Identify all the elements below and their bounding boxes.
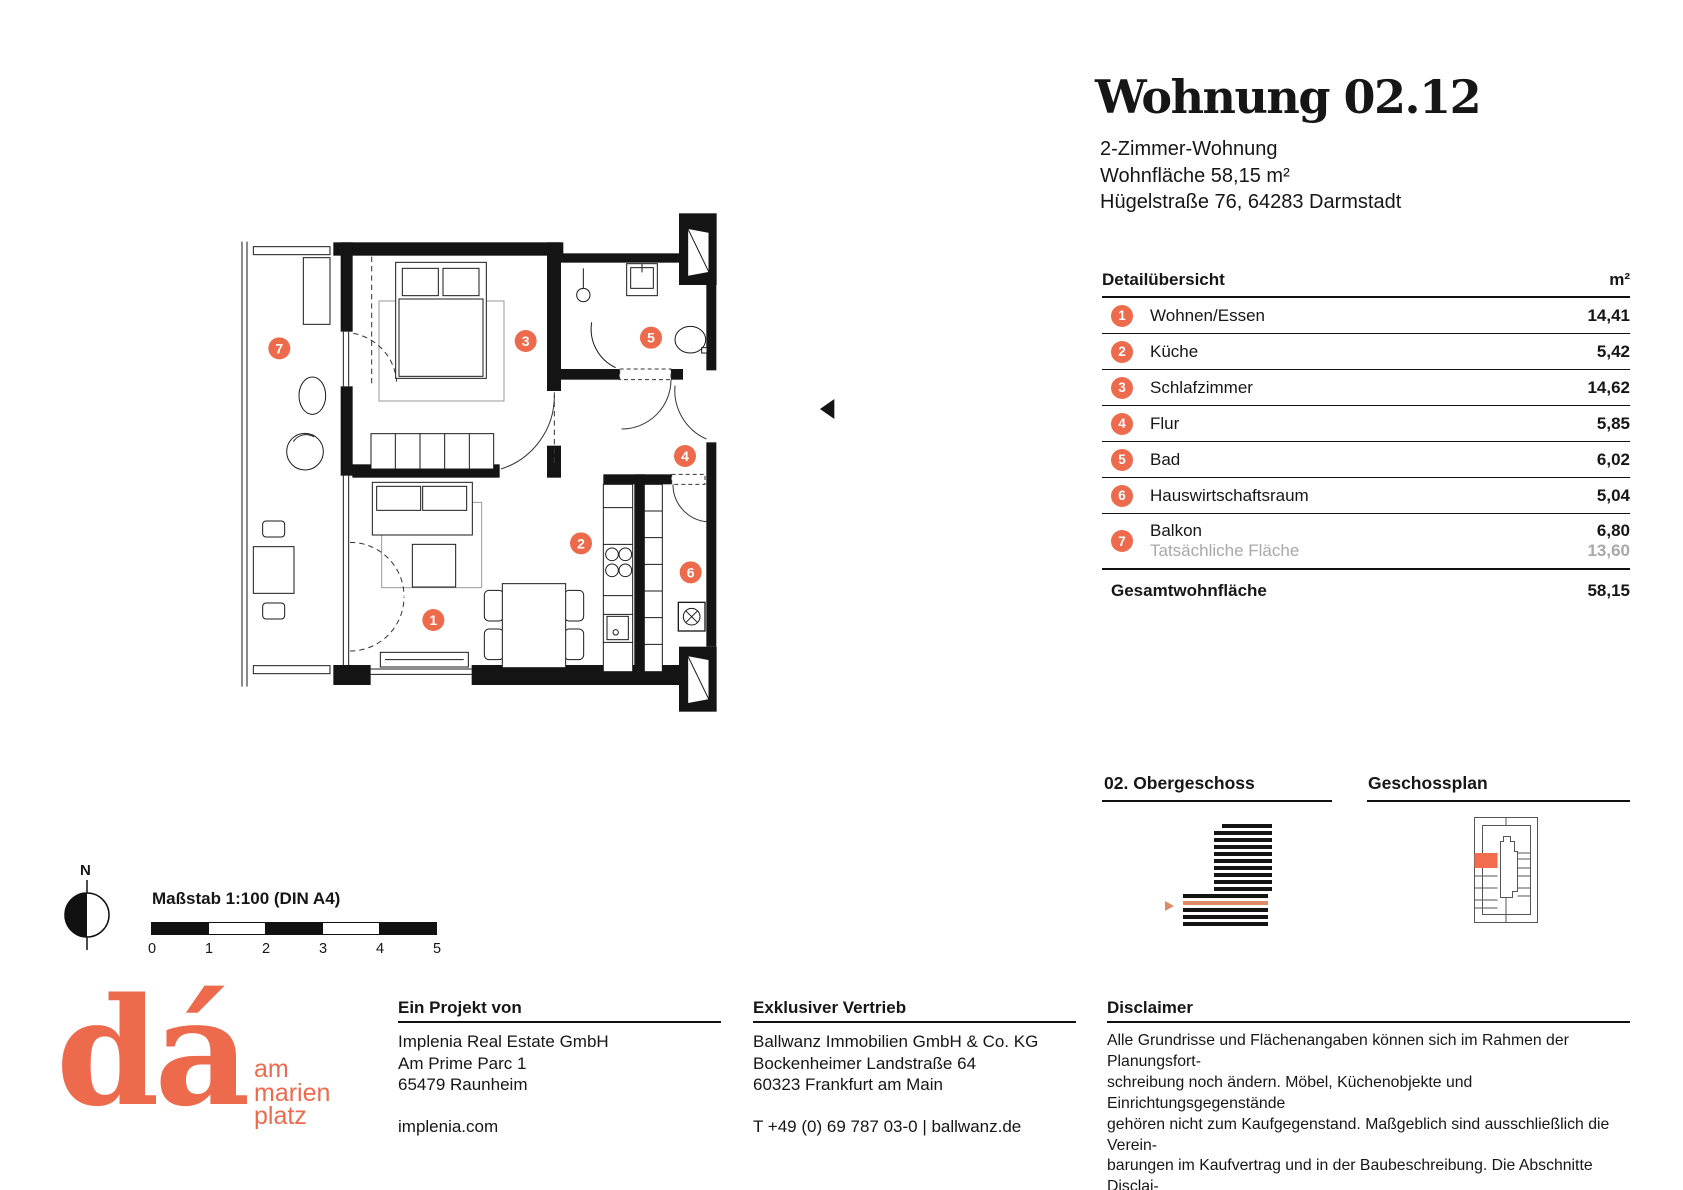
scale-tick: 3 xyxy=(319,941,327,957)
scale-tick: 0 xyxy=(148,941,156,957)
building-elevation-icon xyxy=(1176,824,1272,929)
sales-column-title: Exklusiver Vertrieb xyxy=(753,998,906,1018)
scale-bar xyxy=(152,922,437,935)
table-row: 2 Küche 5,42 xyxy=(1102,334,1630,370)
room-subarea: 13,60 xyxy=(1587,541,1630,561)
brand-logo-tagline: am marien platz xyxy=(254,1058,330,1129)
scale-tick: 1 xyxy=(205,941,213,957)
table-total-row: Gesamtwohnfläche 58,15 xyxy=(1102,570,1630,612)
floor-marker-arrow-icon xyxy=(1165,901,1174,911)
room-label: Bad xyxy=(1150,450,1180,470)
entrance-arrow xyxy=(820,399,834,419)
unit-header: m² xyxy=(1609,270,1630,290)
room-label: Wohnen/Essen xyxy=(1150,306,1265,326)
room-label: Küche xyxy=(1150,342,1198,362)
compass-icon xyxy=(58,880,116,952)
table-row: 1 Wohnen/Essen 14,41 xyxy=(1102,298,1630,334)
plan-badge-2: 2 xyxy=(577,535,585,551)
row-number-badge: 1 xyxy=(1111,305,1133,327)
row-number-badge: 6 xyxy=(1111,485,1133,507)
highlighted-unit xyxy=(1475,853,1498,868)
plan-badge-3: 3 xyxy=(522,333,530,349)
scale-tick: 2 xyxy=(262,941,270,957)
table-row-balkon: 7 Balkon Tatsächliche Fläche 6,80 13,60 xyxy=(1102,514,1630,570)
room-label: Balkon Tatsächliche Fläche xyxy=(1150,521,1299,561)
room-area: 5,85 xyxy=(1597,414,1630,434)
floor-section-rule xyxy=(1102,800,1332,802)
plan-section-rule xyxy=(1367,800,1630,802)
sales-address: Ballwanz Immobilien GmbH & Co. KG Bocken… xyxy=(753,1031,1038,1096)
row-number-badge: 3 xyxy=(1111,377,1133,399)
highlighted-floor-stripe xyxy=(1183,901,1268,905)
room-area: 6,80 13,60 xyxy=(1587,521,1630,561)
row-number-badge: 5 xyxy=(1111,449,1133,471)
page-title: Wohnung 02.12 xyxy=(1095,74,1480,120)
project-website-link[interactable]: implenia.com xyxy=(398,1116,498,1138)
table-row: 6 Hauswirtschaftsraum 5,04 xyxy=(1102,478,1630,514)
room-area: 14,62 xyxy=(1587,378,1630,398)
room-area: 6,02 xyxy=(1597,450,1630,470)
disclaimer-text: Alle Grundrisse und Flächenangaben könne… xyxy=(1107,1031,1632,1190)
row-number-badge: 7 xyxy=(1111,530,1133,552)
sales-column-rule xyxy=(753,1021,1076,1023)
detail-table-title: Detailübersicht xyxy=(1102,270,1225,290)
disclaimer-title: Disclaimer xyxy=(1107,998,1193,1018)
room-label: Schlafzimmer xyxy=(1150,378,1253,398)
total-label: Gesamtwohnfläche xyxy=(1111,581,1267,601)
sales-contact-link[interactable]: T +49 (0) 69 787 03-0 | ballwanz.de xyxy=(753,1116,1021,1138)
room-label: Flur xyxy=(1150,414,1179,434)
floor-plan: 1 2 3 4 5 6 7 xyxy=(195,185,855,725)
apartment-summary: 2-Zimmer-Wohnung Wohnfläche 58,15 m² Hüg… xyxy=(1100,136,1401,216)
project-column-title: Ein Projekt von xyxy=(398,998,522,1018)
project-address: Implenia Real Estate GmbH Am Prime Parc … xyxy=(398,1031,609,1096)
table-row: 3 Schlafzimmer 14,62 xyxy=(1102,370,1630,406)
room-area: 5,04 xyxy=(1597,486,1630,506)
row-number-badge: 4 xyxy=(1111,413,1133,435)
detail-table: Detailübersicht m² 1 Wohnen/Essen 14,41 … xyxy=(1102,270,1630,612)
expose-page: 1 2 3 4 5 6 7 Wohnung 02.12 2-Zimmer-Woh… xyxy=(0,0,1683,1190)
floor-plan-minimap xyxy=(1460,815,1540,927)
plan-badge-6: 6 xyxy=(687,564,695,580)
plan-badge-7: 7 xyxy=(275,340,283,356)
plan-badge-1: 1 xyxy=(429,612,437,628)
table-row: 5 Bad 6,02 xyxy=(1102,442,1630,478)
disclaimer-rule xyxy=(1107,1021,1630,1023)
row-number-badge: 2 xyxy=(1111,341,1133,363)
room-area: 14,41 xyxy=(1587,306,1630,326)
compass-north-label: N xyxy=(80,862,91,879)
room-label: Hauswirtschaftsraum xyxy=(1150,486,1309,506)
scale-label: Maßstab 1:100 (DIN A4) xyxy=(152,889,340,909)
room-area: 5,42 xyxy=(1597,342,1630,362)
brand-logo: dá xyxy=(56,978,245,1126)
scale-tick: 5 xyxy=(433,941,441,957)
floor-section-title: 02. Obergeschoss xyxy=(1104,773,1255,794)
room-sublabel: Tatsächliche Fläche xyxy=(1150,541,1299,561)
project-column-rule xyxy=(398,1021,721,1023)
plan-badge-5: 5 xyxy=(647,330,655,346)
scale-tick: 4 xyxy=(376,941,384,957)
table-row: 4 Flur 5,85 xyxy=(1102,406,1630,442)
plan-section-title: Geschossplan xyxy=(1368,773,1488,794)
plan-badge-4: 4 xyxy=(681,448,689,464)
detail-table-header: Detailübersicht m² xyxy=(1102,270,1630,298)
total-value: 58,15 xyxy=(1587,581,1630,601)
